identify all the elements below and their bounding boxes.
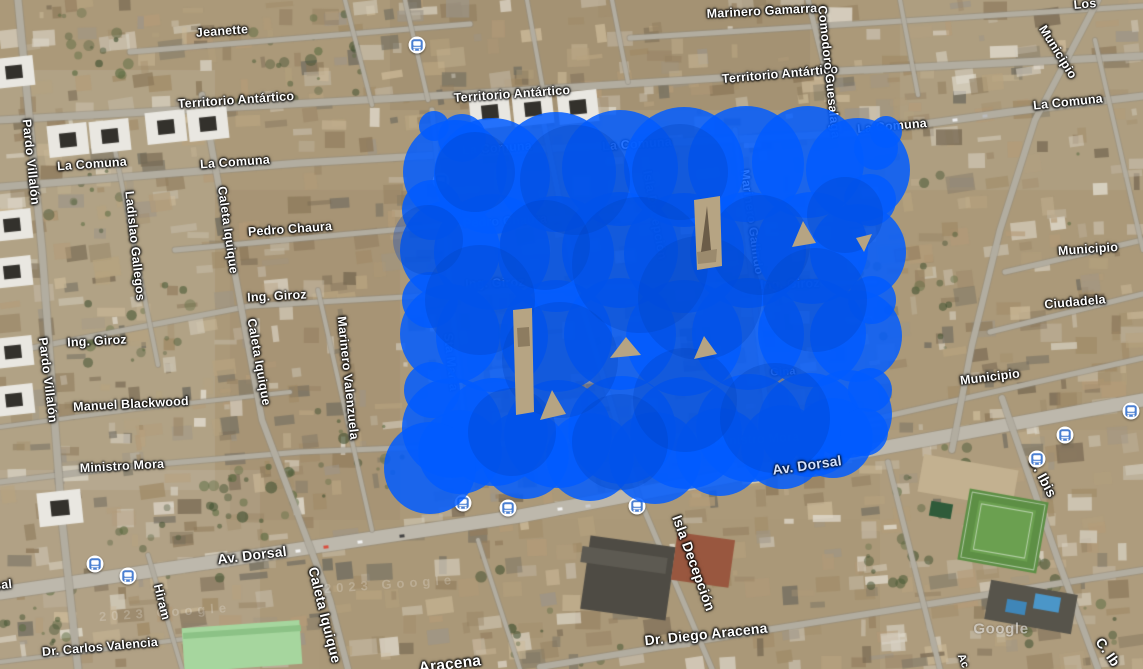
satellite-imagery[interactable] [0,0,1143,669]
satellite-map-view[interactable]: JeanetteMarinero GamarraLosTerritorio An… [0,0,1143,669]
